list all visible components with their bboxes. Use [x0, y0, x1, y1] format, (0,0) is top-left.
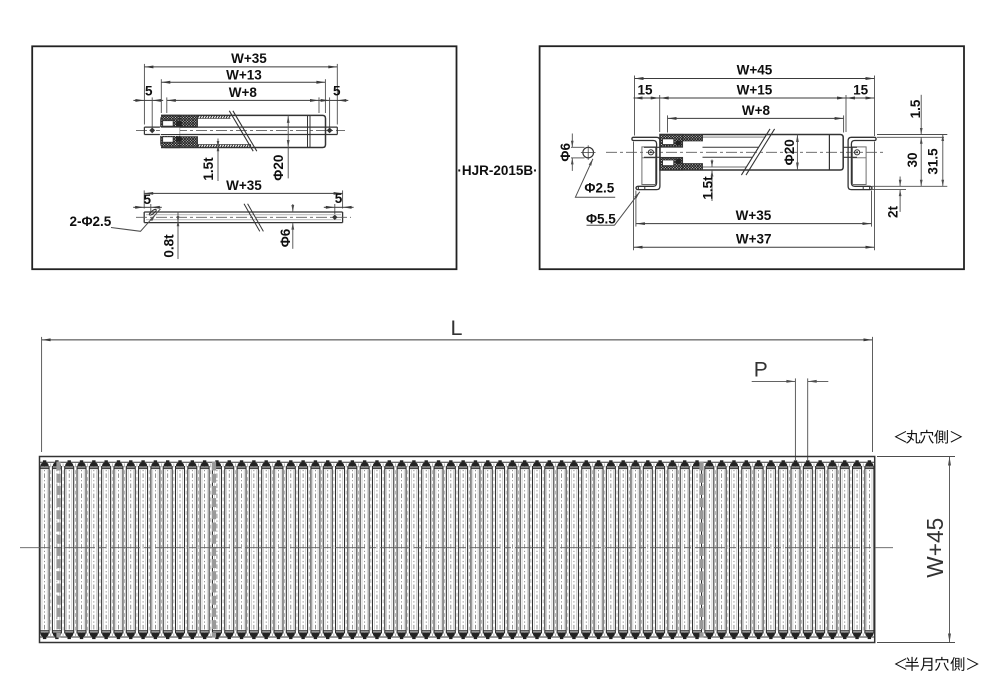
svg-text:L: L — [451, 316, 463, 340]
svg-text:15: 15 — [853, 83, 869, 98]
svg-text:Φ6: Φ6 — [558, 143, 573, 162]
svg-text:0.8t: 0.8t — [161, 234, 176, 258]
svg-text:15: 15 — [637, 83, 653, 98]
svg-text:W+8: W+8 — [742, 103, 771, 118]
svg-text:5: 5 — [144, 192, 152, 207]
svg-text:Φ5.5: Φ5.5 — [586, 211, 616, 226]
svg-text:5: 5 — [145, 83, 153, 98]
svg-text:30: 30 — [905, 152, 920, 167]
svg-text:5: 5 — [335, 191, 343, 206]
svg-text:31.5: 31.5 — [926, 148, 941, 175]
svg-text:W+13: W+13 — [226, 67, 262, 82]
svg-text:Φ20: Φ20 — [782, 139, 797, 165]
svg-text:W+37: W+37 — [736, 232, 772, 247]
svg-text:2t: 2t — [885, 205, 900, 218]
svg-text:W+35: W+35 — [226, 178, 262, 193]
svg-text:Φ20: Φ20 — [271, 155, 286, 181]
svg-text:Φ2.5: Φ2.5 — [584, 181, 614, 196]
svg-text:W+45: W+45 — [737, 63, 773, 78]
svg-text:·HJR-2015B·: ·HJR-2015B· — [457, 163, 537, 178]
svg-text:W+35: W+35 — [231, 51, 267, 66]
svg-text:P: P — [754, 358, 768, 381]
svg-text:1.5t: 1.5t — [201, 157, 216, 181]
svg-text:2-Φ2.5: 2-Φ2.5 — [69, 214, 111, 229]
svg-text:W+8: W+8 — [229, 85, 258, 100]
svg-text:W+35: W+35 — [736, 208, 772, 223]
svg-text:W+15: W+15 — [737, 83, 773, 98]
svg-text:Φ6: Φ6 — [278, 228, 293, 247]
svg-text:5: 5 — [333, 83, 341, 98]
svg-text:W+45: W+45 — [922, 518, 948, 578]
svg-text:1.5t: 1.5t — [700, 176, 715, 200]
svg-text:1.5: 1.5 — [908, 99, 923, 118]
